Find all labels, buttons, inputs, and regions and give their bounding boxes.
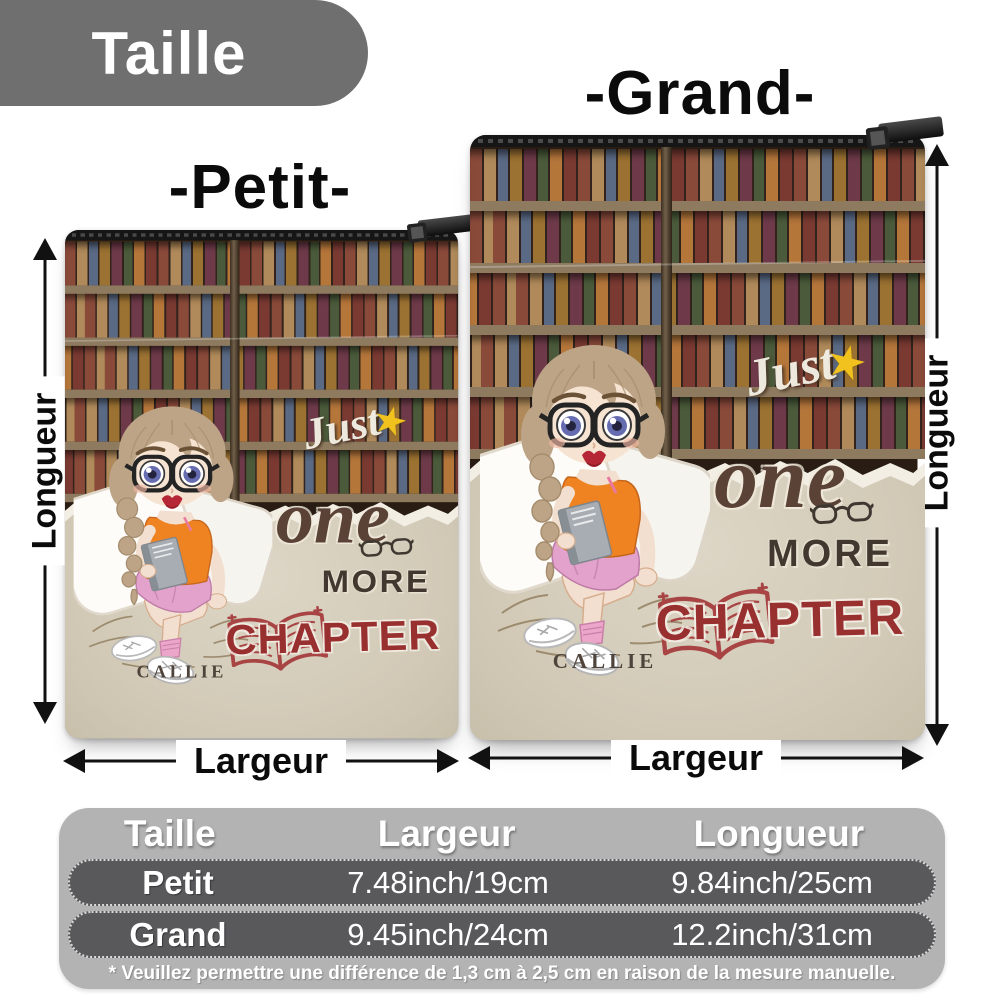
longueur-arrow-grand: Longueur: [923, 144, 951, 746]
largeur-arrow-petit: Largeur: [63, 747, 459, 775]
longueur-arrow-petit: Longueur: [31, 238, 59, 724]
size-table-header: Taille Largeur Longueur: [59, 811, 945, 857]
glasses-icon: [358, 532, 415, 561]
size-label-petit: -Petit-: [70, 152, 450, 223]
cell-longueur-grand: 12.2inch/31cm: [610, 917, 934, 953]
design-word-more: MORE: [763, 533, 897, 576]
table-row-petit: Petit 7.48inch/19cm 9.84inch/25cm: [68, 859, 936, 906]
book-sleeve-grand: Just ★ one MORE CHAPTER CALLIE: [470, 135, 925, 740]
largeur-label-petit: Largeur: [176, 740, 346, 782]
header-largeur: Largeur: [281, 813, 613, 855]
cell-largeur-petit: 7.48inch/19cm: [286, 865, 610, 901]
size-table: Taille Largeur Longueur Petit 7.48inch/1…: [59, 808, 945, 989]
size-label-grand: -Grand-: [490, 58, 910, 129]
arrow-right-icon: [437, 749, 459, 773]
arrow-down-icon: [925, 724, 949, 746]
design-name: CALLIE: [538, 649, 672, 674]
design-word-chapter: CHAPTER: [213, 610, 453, 665]
largeur-arrow-grand: Largeur: [468, 744, 924, 772]
cell-longueur-petit: 9.84inch/25cm: [610, 865, 934, 901]
glasses-icon: [809, 495, 875, 529]
arrow-down-icon: [33, 702, 57, 724]
cell-size-petit: Petit: [70, 864, 286, 902]
design-word-chapter: CHAPTER: [641, 587, 918, 652]
longueur-label-petit: Longueur: [26, 377, 65, 566]
cell-largeur-grand: 9.45inch/24cm: [286, 917, 610, 953]
largeur-label-grand: Largeur: [611, 737, 781, 779]
design-word-more: MORE: [318, 564, 434, 600]
arrow-right-icon: [902, 746, 924, 770]
table-row-grand: Grand 9.45inch/24cm 12.2inch/31cm: [68, 911, 936, 958]
zipper: [470, 135, 925, 147]
page-title: Taille: [92, 19, 277, 88]
zipper: [65, 230, 458, 240]
measurement-footnote: * Veuillez permettre une différence de 1…: [59, 963, 945, 985]
book-sleeve-petit: Just ★ one MORE CHAPTER CALLIE: [65, 230, 458, 738]
header-taille: Taille: [59, 813, 281, 855]
design-name: CALLIE: [124, 662, 240, 683]
header-longueur: Longueur: [613, 813, 945, 855]
cell-size-grand: Grand: [70, 916, 286, 954]
title-ribbon: Taille: [0, 0, 368, 106]
